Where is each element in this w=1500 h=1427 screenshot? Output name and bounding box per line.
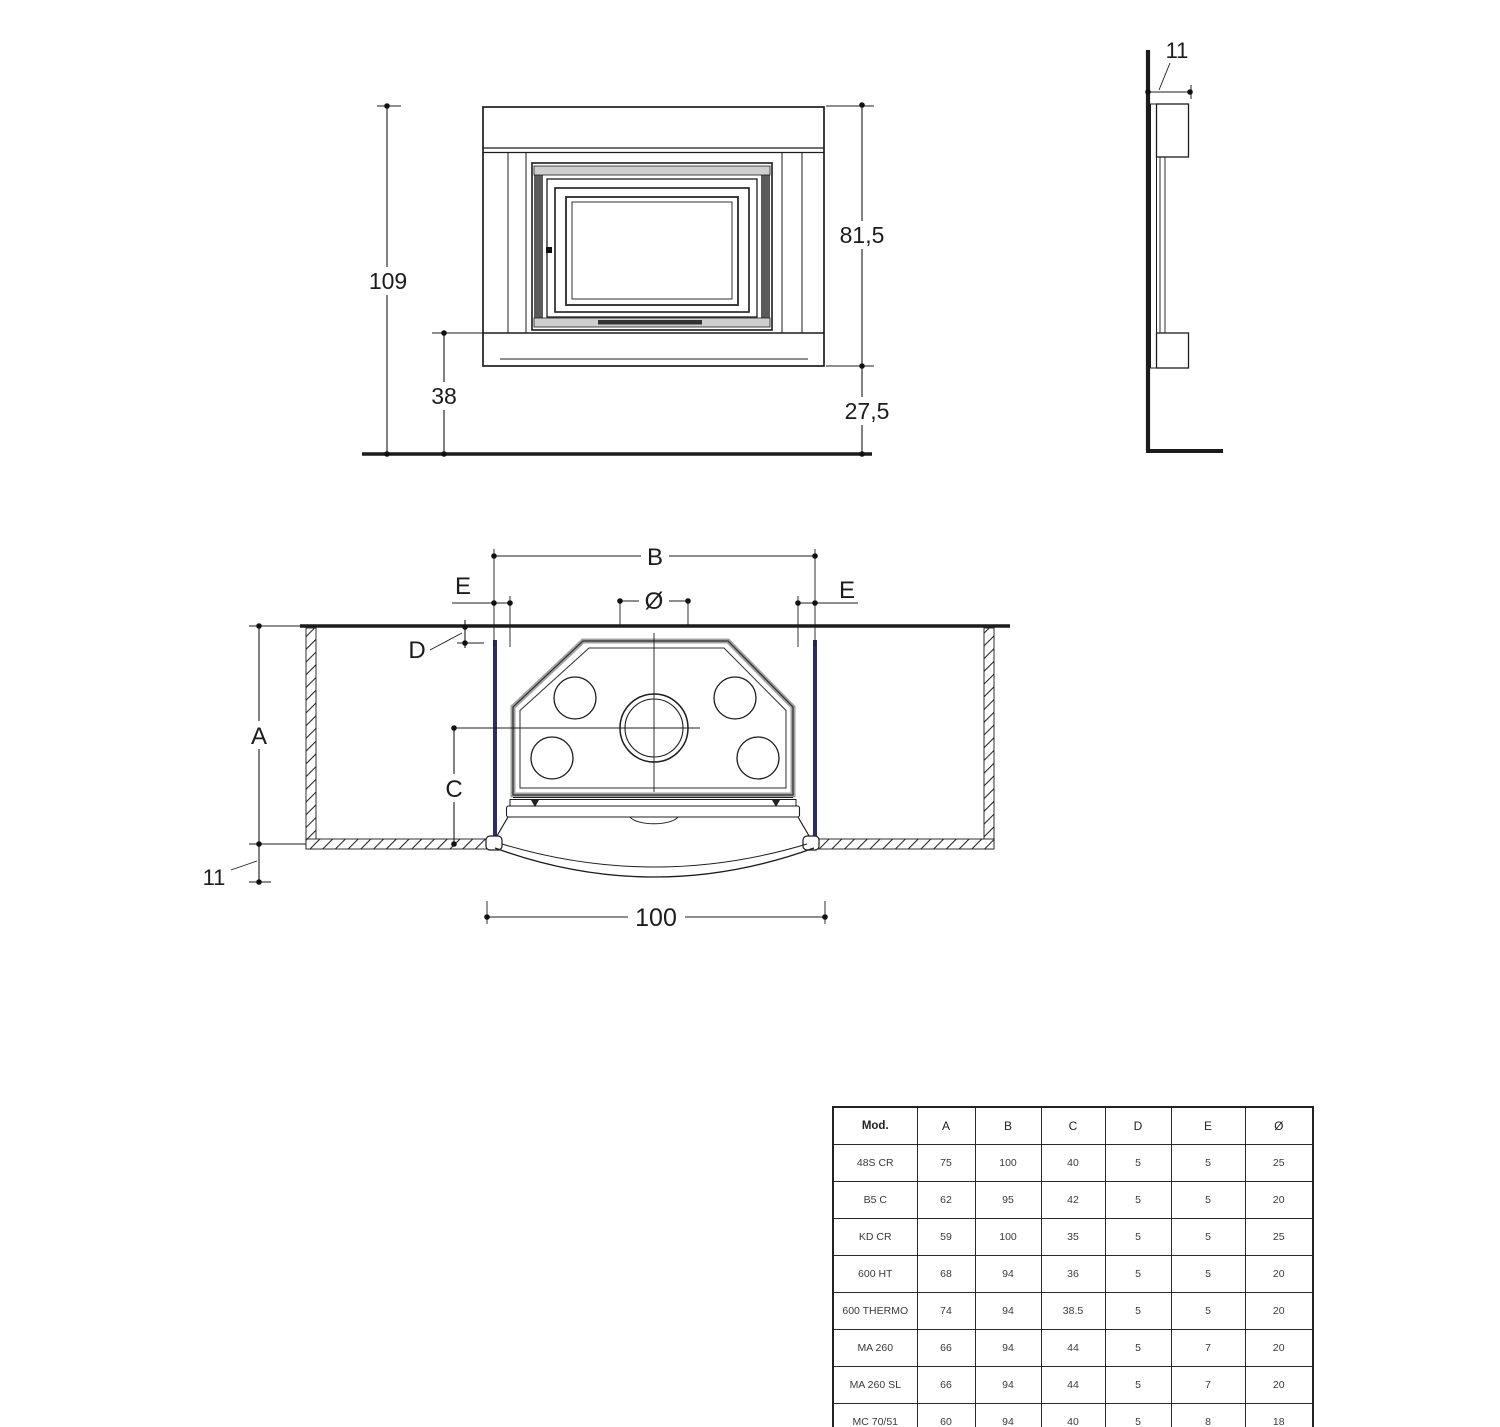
table-cell: 66 [917, 1330, 975, 1367]
table-header-cell: A [917, 1107, 975, 1145]
table-cell: 5 [1105, 1293, 1171, 1330]
table-cell: 25 [1245, 1219, 1313, 1256]
table-cell: 94 [975, 1293, 1041, 1330]
table-cell: 5 [1171, 1145, 1245, 1182]
spec-table-body: Mod.ABCDEØ48S CR75100405525B5 C629542552… [833, 1107, 1313, 1427]
table-cell: 60 [917, 1404, 975, 1427]
dim-label-base-height: 27,5 [845, 398, 890, 424]
table-cell: 5 [1171, 1219, 1245, 1256]
table-header-row: Mod.ABCDEØ [833, 1107, 1313, 1145]
dim-label-overall-width: 100 [635, 904, 677, 932]
table-cell: 36 [1041, 1256, 1105, 1293]
table-cell: 94 [975, 1256, 1041, 1293]
table-cell: 94 [975, 1404, 1041, 1427]
table-cell: 7 [1171, 1330, 1245, 1367]
table-cell: 48S CR [833, 1145, 917, 1182]
table-cell: 20 [1245, 1256, 1313, 1293]
table-row: 600 THERMO749438.55520 [833, 1293, 1313, 1330]
dim-label-E-left: E [455, 573, 471, 600]
table-cell: 20 [1245, 1182, 1313, 1219]
table-cell: 59 [917, 1219, 975, 1256]
dim-label-total-height: 109 [369, 268, 407, 294]
table-cell: 62 [917, 1182, 975, 1219]
table-cell: 100 [975, 1145, 1041, 1182]
table-header-cell: B [975, 1107, 1041, 1145]
table-cell: MA 260 SL [833, 1367, 917, 1404]
table-cell: 7 [1171, 1367, 1245, 1404]
table-cell: KD CR [833, 1219, 917, 1256]
dim-label-plinth-height: 38 [431, 383, 457, 409]
dim-label-B: B [647, 544, 663, 571]
table-row: MA 2606694445720 [833, 1330, 1313, 1367]
table-header-cell: Ø [1245, 1107, 1313, 1145]
dim-label-C: C [445, 776, 462, 803]
plan-view-drawing [300, 626, 1010, 877]
table-row: MA 260 SL6694445720 [833, 1367, 1313, 1404]
table-cell: 95 [975, 1182, 1041, 1219]
side-view-drawing [1145, 50, 1223, 451]
table-cell: 5 [1171, 1182, 1245, 1219]
table-cell: 600 HT [833, 1256, 917, 1293]
dim-label-front-offset: 11 [203, 865, 226, 890]
table-cell: 5 [1105, 1219, 1171, 1256]
table-cell: 40 [1041, 1145, 1105, 1182]
table-cell: 600 THERMO [833, 1293, 917, 1330]
table-row: 48S CR75100405525 [833, 1145, 1313, 1182]
table-cell: 40 [1041, 1404, 1105, 1427]
table-row: 600 HT6894365520 [833, 1256, 1313, 1293]
model-spec-table: Mod.ABCDEØ48S CR75100405525B5 C629542552… [832, 1106, 1314, 1427]
table-cell: 44 [1041, 1330, 1105, 1367]
table-cell: 100 [975, 1219, 1041, 1256]
table-cell: 20 [1245, 1330, 1313, 1367]
table-cell: 18 [1245, 1404, 1313, 1427]
table-cell: 68 [917, 1256, 975, 1293]
dim-label-side-depth: 11 [1166, 38, 1189, 63]
table-row: KD CR59100355525 [833, 1219, 1313, 1256]
table-cell: 5 [1105, 1256, 1171, 1293]
table-cell: 94 [975, 1367, 1041, 1404]
table-cell: 44 [1041, 1367, 1105, 1404]
table-cell: 25 [1245, 1145, 1313, 1182]
table-cell: 94 [975, 1330, 1041, 1367]
table-cell: 74 [917, 1293, 975, 1330]
table-cell: 8 [1171, 1404, 1245, 1427]
table-cell: 20 [1245, 1367, 1313, 1404]
table-cell: B5 C [833, 1182, 917, 1219]
table-header-cell: D [1105, 1107, 1171, 1145]
table-cell: 5 [1105, 1367, 1171, 1404]
table-cell: MC 70/51 [833, 1404, 917, 1427]
table-cell: 5 [1171, 1293, 1245, 1330]
dim-label-E-right: E [839, 577, 855, 604]
table-header-cell: Mod. [833, 1107, 917, 1145]
dim-label-A: A [251, 723, 267, 750]
table-cell: MA 260 [833, 1330, 917, 1367]
table-header-cell: C [1041, 1107, 1105, 1145]
table-cell: 75 [917, 1145, 975, 1182]
dim-label-diameter: Ø [645, 588, 664, 615]
table-cell: 5 [1105, 1404, 1171, 1427]
table-cell: 20 [1245, 1293, 1313, 1330]
table-row: B5 C6295425520 [833, 1182, 1313, 1219]
dim-label-D: D [408, 637, 425, 664]
table-cell: 38.5 [1041, 1293, 1105, 1330]
table-cell: 66 [917, 1367, 975, 1404]
table-row: MC 70/516094405818 [833, 1404, 1313, 1427]
table-cell: 5 [1171, 1256, 1245, 1293]
table-cell: 5 [1105, 1182, 1171, 1219]
table-header-cell: E [1171, 1107, 1245, 1145]
dim-label-opening-height: 81,5 [840, 222, 885, 248]
table-cell: 5 [1105, 1145, 1171, 1182]
fireplace-technical-drawing-page: 109 38 81,5 27,5 11 [0, 0, 1500, 1427]
table-cell: 35 [1041, 1219, 1105, 1256]
table-cell: 42 [1041, 1182, 1105, 1219]
table-cell: 5 [1105, 1330, 1171, 1367]
